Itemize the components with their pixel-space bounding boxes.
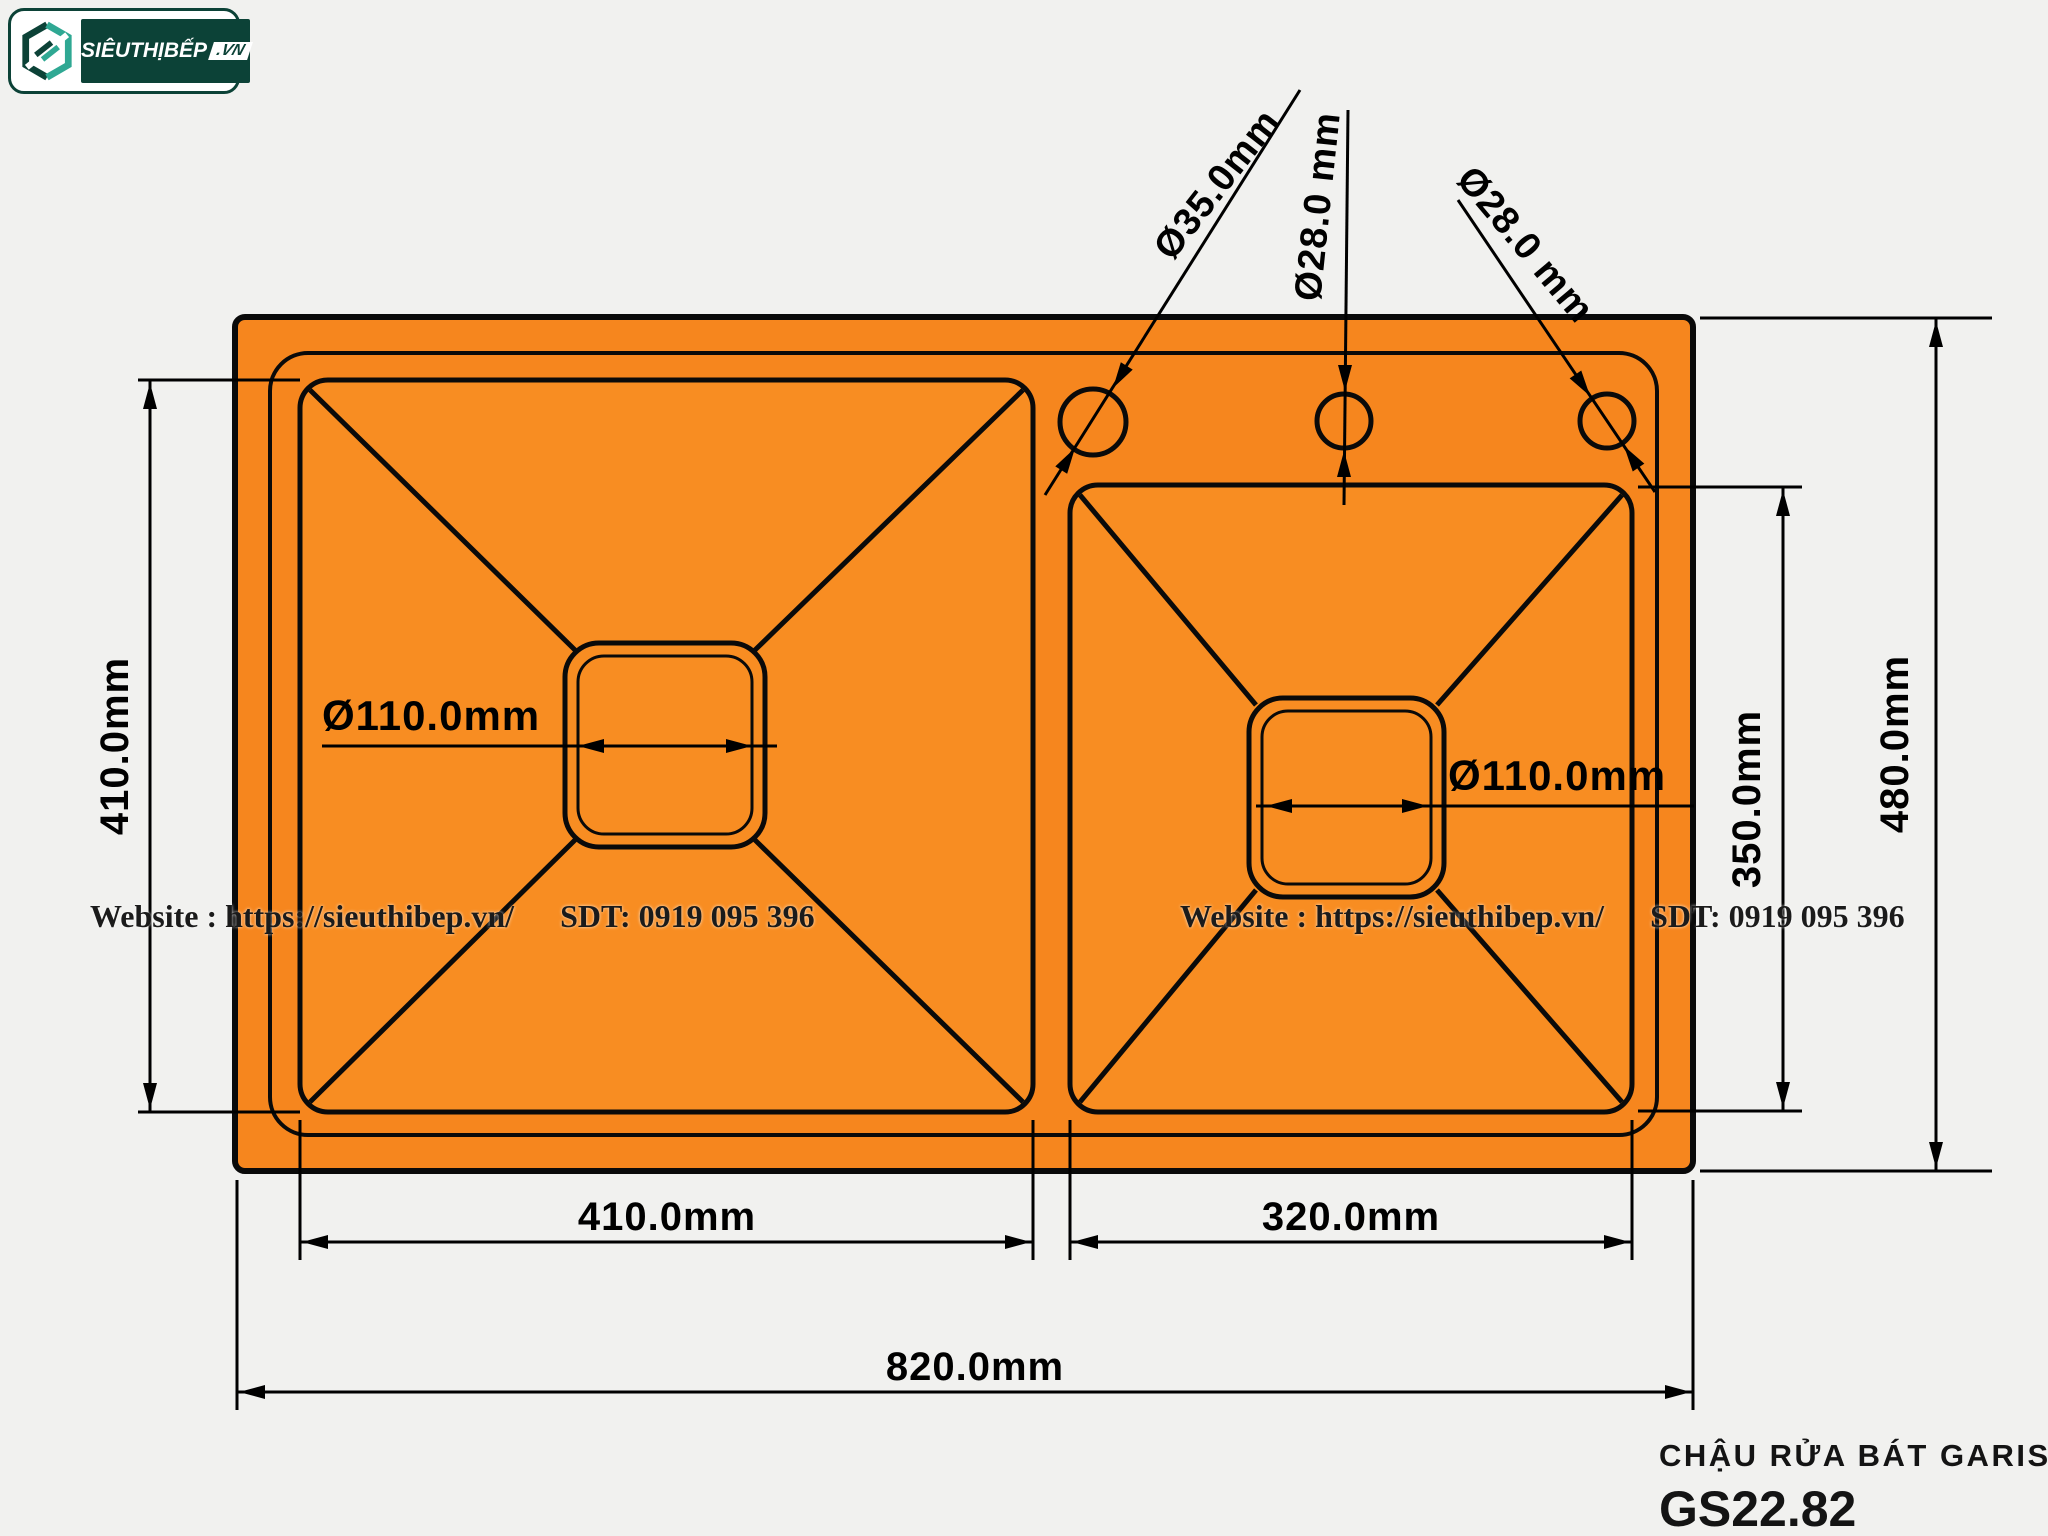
- dim-label-right-drain: Ø110.0mm: [1448, 752, 1666, 799]
- dim-label-faucet-hole-3: Ø28.0 mm: [1448, 159, 1602, 331]
- sink-body: [235, 317, 1693, 1171]
- dim-label-faucet-hole-1: Ø35.0mm: [1146, 101, 1289, 267]
- product-title-block: CHẬU RỬA BÁT GARIS GS22.82: [1659, 1438, 2048, 1536]
- logo-panel: SIÊUTHỊBẾP .VN: [81, 19, 250, 83]
- brand-logo: SIÊUTHỊBẾP .VN: [8, 8, 240, 94]
- brand-tld: .VN: [208, 42, 253, 60]
- dim-label-left-bowl-width: 410.0mm: [578, 1195, 756, 1239]
- watermark-phone: SDT: 0919 095 396: [560, 898, 815, 935]
- product-title: CHẬU RỬA BÁT GARIS: [1659, 1438, 2048, 1474]
- dim-label-left-drain: Ø110.0mm: [322, 692, 540, 739]
- watermark-left: Website : https://sieuthibep.vn/ SDT: 09…: [90, 898, 815, 935]
- dim-overall-width: 820.0mm: [237, 1180, 1693, 1410]
- brand-name: SIÊUTHỊBẾP: [81, 39, 207, 63]
- dim-label-left-bowl-depth: 410.0mm: [93, 657, 137, 835]
- product-model: GS22.82: [1659, 1480, 2048, 1536]
- dim-label-overall-width: 820.0mm: [886, 1345, 1064, 1389]
- dim-label-right-bowl-width: 320.0mm: [1262, 1195, 1440, 1239]
- watermark-phone: SDT: 0919 095 396: [1650, 898, 1905, 935]
- dim-label-faucet-hole-2: Ø28.0 mm: [1287, 110, 1349, 303]
- page: 410.0mm 350.0mm 480.0mm 410.0: [0, 0, 2048, 1536]
- watermark-right: Website : https://sieuthibep.vn/ SDT: 09…: [1180, 898, 1905, 935]
- hexagon-s-icon: [19, 20, 75, 82]
- watermark-website: Website : https://sieuthibep.vn/: [90, 898, 514, 935]
- watermark-website: Website : https://sieuthibep.vn/: [1180, 898, 1604, 935]
- dim-label-overall-depth: 480.0mm: [1873, 655, 1917, 833]
- dim-label-right-bowl-depth: 350.0mm: [1725, 710, 1769, 888]
- sink-technical-drawing: 410.0mm 350.0mm 480.0mm 410.0: [0, 0, 2048, 1536]
